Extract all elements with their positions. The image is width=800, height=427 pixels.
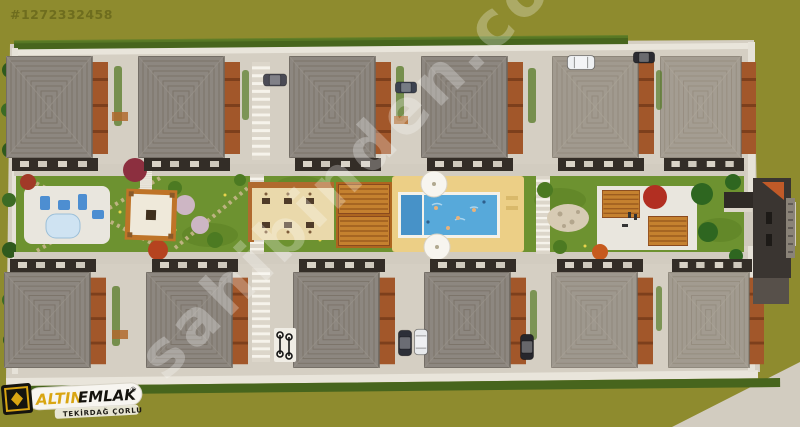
building-entrance bbox=[557, 259, 643, 272]
bicycle-rack bbox=[274, 328, 296, 362]
car bbox=[414, 329, 427, 354]
listing-id: #1272332458 bbox=[10, 7, 113, 22]
logo-emblem bbox=[1, 383, 34, 416]
car bbox=[633, 52, 654, 63]
building bbox=[293, 272, 395, 368]
building bbox=[424, 272, 526, 368]
building bbox=[4, 272, 106, 368]
building-entrance bbox=[558, 158, 644, 171]
building bbox=[6, 56, 108, 158]
building bbox=[138, 56, 240, 158]
rock-garden bbox=[547, 204, 589, 232]
building-entrance bbox=[430, 259, 516, 272]
building-entrance bbox=[12, 158, 98, 171]
building-entrance bbox=[664, 158, 744, 171]
gatehouse-sign bbox=[786, 198, 795, 258]
building-entrance bbox=[672, 259, 752, 272]
car bbox=[263, 74, 286, 86]
kids-pool bbox=[401, 195, 423, 235]
pool-deck bbox=[392, 171, 524, 260]
logo-brand-gold: ALTIN bbox=[35, 388, 84, 409]
logo-registered-mark: ® bbox=[129, 386, 136, 394]
site-plan-render: sahibinden.com #1272332458 ALTIN EMLAK ®… bbox=[0, 0, 800, 427]
pergola bbox=[602, 190, 640, 218]
car bbox=[521, 334, 534, 359]
garden-kiosk bbox=[127, 191, 175, 239]
building-entrance bbox=[144, 158, 230, 171]
car bbox=[398, 330, 411, 355]
building-entrance bbox=[299, 259, 385, 272]
building-entrance bbox=[10, 259, 96, 272]
car bbox=[567, 55, 594, 69]
listing-photo: sahibinden.com #1272332458 ALTIN EMLAK ®… bbox=[0, 0, 800, 427]
pergola bbox=[648, 216, 688, 246]
building-entrance bbox=[427, 158, 513, 171]
